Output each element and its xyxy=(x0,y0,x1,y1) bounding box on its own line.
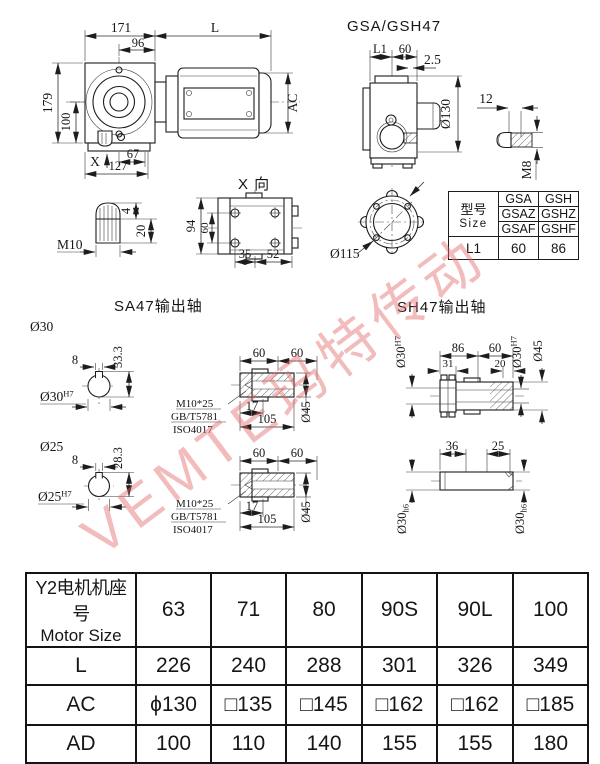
value-AD: 155 xyxy=(362,725,437,763)
dim-dia130: Ø130 xyxy=(438,99,453,129)
dim-67: 67 xyxy=(127,147,140,161)
dim-dia30h6-left: Ø30h6 xyxy=(395,504,411,534)
motor-size-cell: 63 xyxy=(136,573,211,647)
sa47-title: SA47输出轴 xyxy=(114,298,203,315)
sa47-bore30-section: Ø30 8 33.3 Ø30H7 xyxy=(30,319,134,411)
dim-35: 35 xyxy=(239,247,252,261)
dim-L: L xyxy=(211,20,219,35)
m8-bolt-shank xyxy=(511,133,532,147)
dim-8-s30: 8 xyxy=(72,353,78,367)
value-L: 288 xyxy=(286,647,362,685)
dim-12: 12 xyxy=(479,91,493,106)
value-AC: □162 xyxy=(437,685,513,725)
label-dia25: Ø25 xyxy=(40,439,63,454)
row-label-L: L xyxy=(26,647,136,685)
dim-36: 36 xyxy=(446,439,459,453)
value-AC: □162 xyxy=(362,685,437,725)
motor-size-cell: 90S xyxy=(362,573,437,647)
l1-value-gsh: 86 xyxy=(539,237,579,260)
model-cell: GSHZ xyxy=(539,207,579,222)
side-view-title: GSA/GSH47 xyxy=(347,18,441,35)
model-cell: GSAZ xyxy=(499,207,539,222)
dim-100: 100 xyxy=(59,113,73,132)
dim-94: 94 xyxy=(184,219,198,232)
view-direction-x: X xyxy=(90,154,100,169)
bore30-circle xyxy=(88,375,110,397)
dim-31: 31 xyxy=(443,358,454,370)
dim-127: 127 xyxy=(109,159,128,173)
gearbox-side-body xyxy=(370,83,417,158)
sh47-upper-shaft: 86 60 31 20 Ø30H7 Ø30H7 Ø45 xyxy=(393,336,549,424)
dim-L1: L1 xyxy=(373,42,387,56)
motor-size-cell: 100 xyxy=(513,573,588,647)
adapter-flange xyxy=(155,82,166,122)
oil-plug xyxy=(98,131,112,146)
front-view-drawing: 171 L 96 179 100 AC X 67 127 xyxy=(40,20,300,179)
value-AD: 180 xyxy=(513,725,588,763)
value-L: 349 xyxy=(513,647,588,685)
motor-size-cell: 90L xyxy=(437,573,513,647)
value-AC: ϕ130 xyxy=(136,685,211,725)
value-L: 326 xyxy=(437,647,513,685)
dim-dia30h6-right: Ø30h6 xyxy=(513,504,529,534)
dim-4: 4 xyxy=(119,207,133,214)
motor-size-header-en: Motor Size xyxy=(27,626,135,646)
dim-8-s25: 8 xyxy=(72,453,78,467)
motor-size-cell: 80 xyxy=(286,573,362,647)
dim-171: 171 xyxy=(111,20,131,35)
dim-52: 52 xyxy=(267,247,280,261)
side-view-drawing: GSA/GSH47 L1 60 2.5 Ø130 12 xyxy=(347,18,543,180)
gearbox-foot xyxy=(88,143,150,151)
dim-60-sh: 60 xyxy=(489,341,502,355)
dim-25: 25 xyxy=(492,439,505,453)
value-AC: □185 xyxy=(513,685,588,725)
row-label-AD: AD xyxy=(26,725,136,763)
dim-20-sh: 20 xyxy=(495,358,507,370)
model-cell: GSA xyxy=(499,192,539,207)
l1-value-gsa: 60 xyxy=(499,237,539,260)
model-cell: GSH xyxy=(539,192,579,207)
dim-dia45-sh: Ø45 xyxy=(531,340,545,362)
sh47-lower-shaft: 36 25 Ø30h6 Ø30h6 xyxy=(395,439,530,534)
value-AC: □145 xyxy=(286,685,362,725)
row-label-AC: AC xyxy=(26,685,136,725)
dim-dia115: Ø115 xyxy=(330,246,360,261)
value-L: 240 xyxy=(211,647,286,685)
label-dia30: Ø30 xyxy=(30,319,53,334)
dim-2.5: 2.5 xyxy=(424,52,441,67)
m10-plug-detail: 4 20 M10 xyxy=(57,203,157,257)
dim-60-xview: 60 xyxy=(199,222,211,234)
label-dia30H7: Ø30H7 xyxy=(40,389,74,405)
dim-60-side: 60 xyxy=(399,42,412,56)
value-AD: 140 xyxy=(286,725,362,763)
x-view-body xyxy=(218,198,292,254)
motor-size-header: Y2电机机座号 Motor Size xyxy=(26,573,136,647)
dim-dia30H7-right: Ø30H7 xyxy=(509,336,525,368)
motor-size-cell: 71 xyxy=(211,573,286,647)
x-direction-view: X 向 94 60 35 52 xyxy=(184,176,302,268)
m8-bolt-head xyxy=(497,133,511,148)
dim-96: 96 xyxy=(132,36,145,50)
motor-size-header-cn: Y2电机机座号 xyxy=(27,574,135,626)
value-AC: □135 xyxy=(211,685,286,725)
value-AD: 110 xyxy=(211,725,286,763)
value-AD: 100 xyxy=(136,725,211,763)
x-view-label: X 向 xyxy=(238,176,270,193)
dim-M10: M10 xyxy=(57,237,83,252)
dim-179: 179 xyxy=(40,93,55,114)
dim-M8: M8 xyxy=(519,160,534,179)
size-header-cn: 型号 xyxy=(449,199,498,218)
model-cell: GSHF xyxy=(539,222,579,237)
value-AD: 155 xyxy=(437,725,513,763)
dim-86: 86 xyxy=(452,341,465,355)
dim-20: 20 xyxy=(134,225,148,238)
motor-dimension-table: Y2电机机座号 Motor Size 63 71 80 90S 90L 100 … xyxy=(25,572,589,764)
sh47-plain-shaft-body xyxy=(440,472,513,490)
value-L: 226 xyxy=(136,647,211,685)
input-flange xyxy=(417,103,440,129)
dim-33.3: 33.3 xyxy=(111,346,125,368)
value-L: 301 xyxy=(362,647,437,685)
dim-AC: AC xyxy=(285,94,300,113)
gearbox-datasheet-page: { "watermark": { "text": "VEMTE玛特传动", "c… xyxy=(0,0,600,758)
model-cell: GSAF xyxy=(499,222,539,237)
motor-stator-band xyxy=(184,88,254,119)
motor-rear-cap xyxy=(259,73,271,133)
